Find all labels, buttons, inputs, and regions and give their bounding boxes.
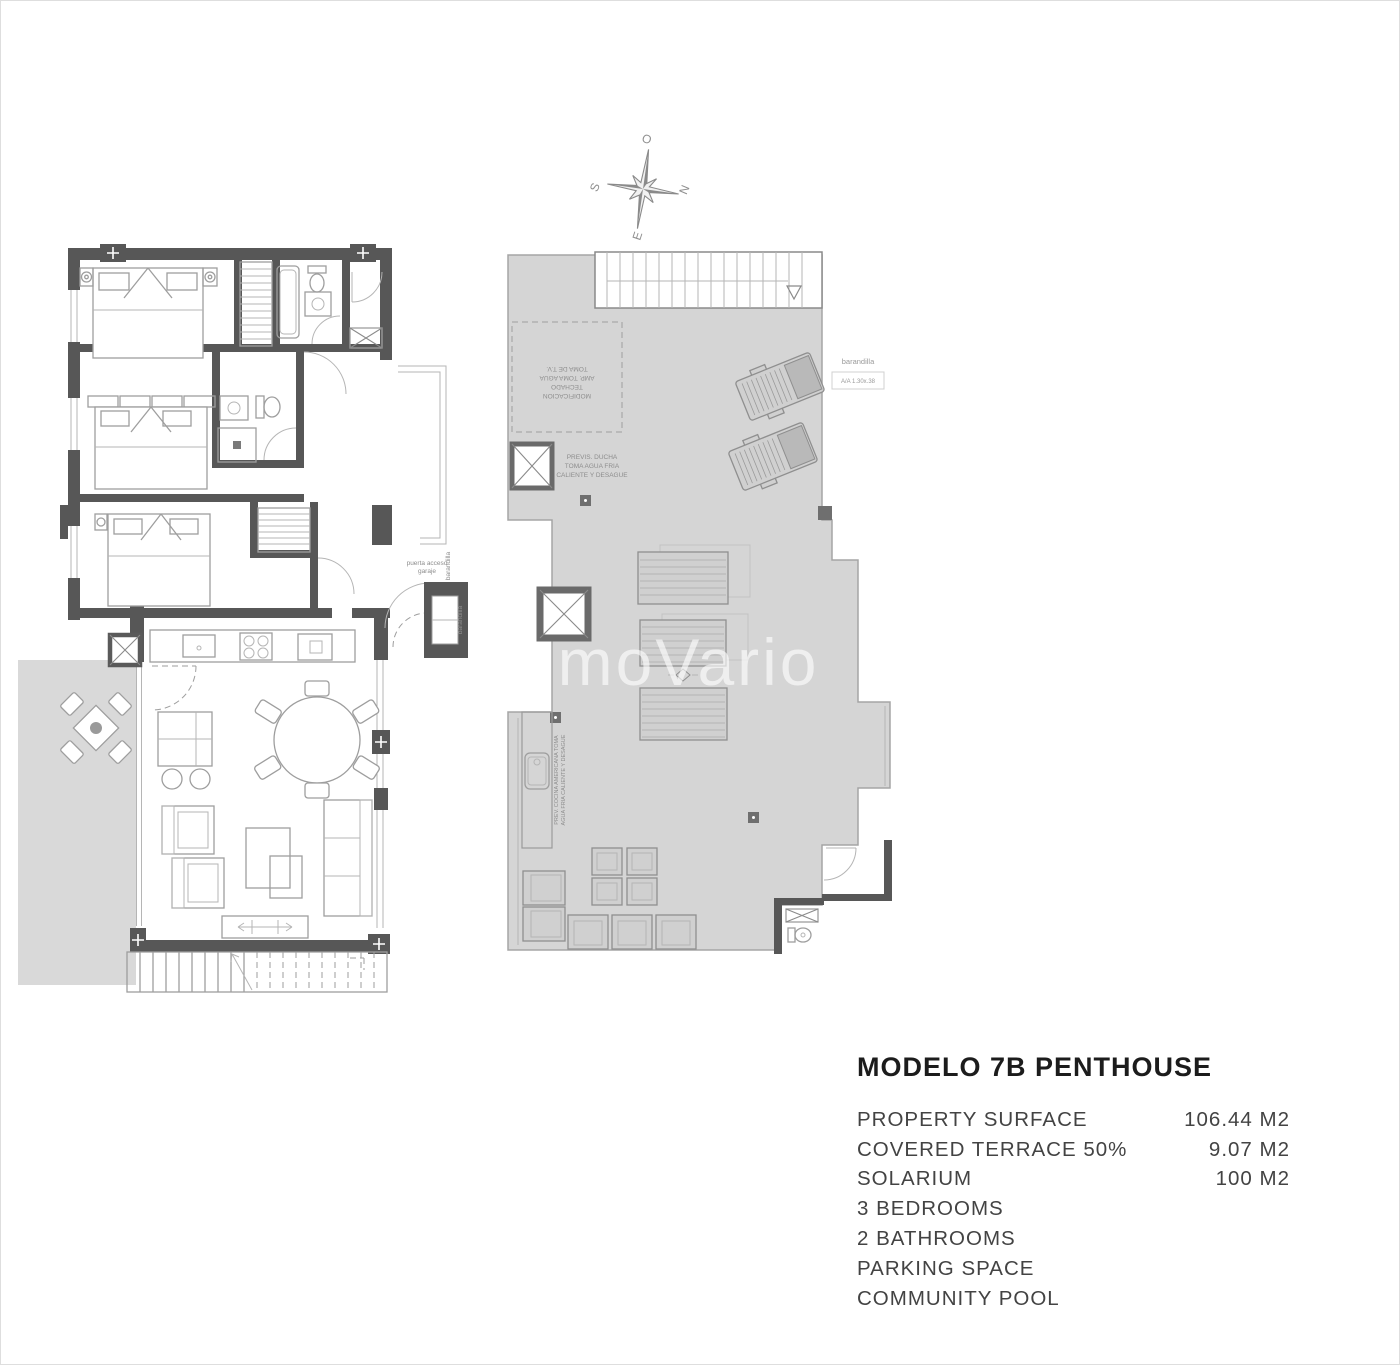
armchair-icon <box>172 858 224 908</box>
compass-rose: O N S E <box>581 124 700 248</box>
spec-label: COVERED TERRACE 50% <box>857 1138 1127 1162</box>
door-arc <box>385 583 430 628</box>
annotation-railing: barandilla <box>457 606 464 635</box>
wardrobe-icon <box>258 508 310 552</box>
svg-text:AMP. TOMA AGUA: AMP. TOMA AGUA <box>539 374 595 381</box>
floorplan-page: O N S E <box>0 0 1400 1365</box>
toilet-icon <box>256 396 264 418</box>
svg-text:AGUA FRIA CALIENTE Y DESAGUE: AGUA FRIA CALIENTE Y DESAGUE <box>561 734 567 825</box>
door-arc <box>318 558 354 594</box>
sink-icon <box>220 396 248 420</box>
kitchen-island-icon <box>158 712 212 789</box>
door-arc <box>304 352 346 394</box>
annotation-railing: barandilla <box>842 357 875 366</box>
spec-label: 2 BATHROOMS <box>857 1227 1016 1251</box>
bed-icon <box>88 396 215 489</box>
spec-label: COMMUNITY POOL <box>857 1287 1060 1311</box>
toilet-icon <box>788 928 811 942</box>
svg-text:TOMA AGUA FRIA: TOMA AGUA FRIA <box>565 463 620 470</box>
annotation-door-note: garaje <box>418 568 436 575</box>
spec-row: COVERED TERRACE 50% 9.07 M2 <box>857 1135 1290 1165</box>
door-arc-dashed <box>393 613 427 647</box>
spec-label: PARKING SPACE <box>857 1257 1034 1281</box>
spec-row: 3 BEDROOMS <box>857 1194 1290 1224</box>
ac-unit-label: A/A 1.30x.38 <box>841 379 876 385</box>
bathroom-1 <box>277 266 340 344</box>
sink-icon <box>305 292 331 316</box>
tv-bench-icon <box>222 916 308 938</box>
svg-text:MODIFICACION: MODIFICACION <box>543 392 591 399</box>
spec-row: SOLARIUM 100 M2 <box>857 1165 1290 1195</box>
svg-text:TECHADO: TECHADO <box>551 383 583 390</box>
annotation-door-note: puerta acceso <box>407 560 448 567</box>
door-arc-dashed <box>152 666 196 710</box>
spec-row: 2 BATHROOMS <box>857 1224 1290 1254</box>
entry-door-icon <box>352 272 382 302</box>
spec-row: PARKING SPACE <box>857 1254 1290 1284</box>
bed-icon <box>95 514 210 606</box>
balcony-railing <box>398 366 446 544</box>
svg-text:TOMA DE T.V.: TOMA DE T.V. <box>546 365 588 372</box>
spec-value: 100 M2 <box>1216 1167 1290 1191</box>
spec-row: COMMUNITY POOL <box>857 1284 1290 1314</box>
compass-letter-o: O <box>640 131 654 147</box>
sofa-icon <box>324 800 372 916</box>
svg-text:PREV. COCINA AMERICANA TOMA: PREV. COCINA AMERICANA TOMA <box>554 735 560 825</box>
door-arc <box>824 848 856 880</box>
wardrobe-icon <box>240 262 272 346</box>
spec-value: 106.44 M2 <box>1184 1108 1290 1132</box>
armchair-icon <box>162 806 214 854</box>
svg-text:PREVIS. DUCHA: PREVIS. DUCHA <box>567 454 618 461</box>
spec-label: SOLARIUM <box>857 1167 972 1191</box>
annotation-railing: barandilla <box>445 552 452 581</box>
staircase-icon <box>595 252 822 308</box>
watermark: immoVario <box>482 624 902 700</box>
svg-text:CALIENTE Y DESAGUE: CALIENTE Y DESAGUE <box>556 472 628 479</box>
spec-label: 3 BEDROOMS <box>857 1197 1004 1221</box>
spec-label: PROPERTY SURFACE <box>857 1108 1088 1132</box>
spec-value: 9.07 M2 <box>1209 1138 1290 1162</box>
bed-icon <box>80 268 217 358</box>
compass-letter-n: N <box>676 183 692 196</box>
bathroom-2 <box>218 396 296 462</box>
specs-panel: MODELO 7B PENTHOUSE PROPERTY SURFACE 106… <box>857 1052 1290 1314</box>
plan-title: MODELO 7B PENTHOUSE <box>857 1052 1290 1083</box>
compass-letter-e: E <box>630 230 646 242</box>
annotation-kitchen-note: PREV. COCINA AMERICANA TOMA AGUA FRIA CA… <box>554 734 567 825</box>
spec-row: PROPERTY SURFACE 106.44 M2 <box>857 1105 1290 1135</box>
stairs-icon <box>127 952 387 992</box>
coffee-table-icon <box>246 828 302 898</box>
shaft-icon <box>110 635 140 665</box>
dining-table-icon <box>254 681 381 798</box>
compass-letter-s: S <box>587 181 603 194</box>
kitchen-counter-icon <box>150 630 355 662</box>
skylight-icon <box>512 444 552 488</box>
window-icon <box>68 290 80 578</box>
main-floor-plan: puerta acceso garaje barandilla barandil… <box>18 244 468 992</box>
solarium-plan: MODIFICACION TECHADO AMP. TOMA AGUA TOMA… <box>508 252 892 954</box>
toilet-icon <box>308 266 326 273</box>
